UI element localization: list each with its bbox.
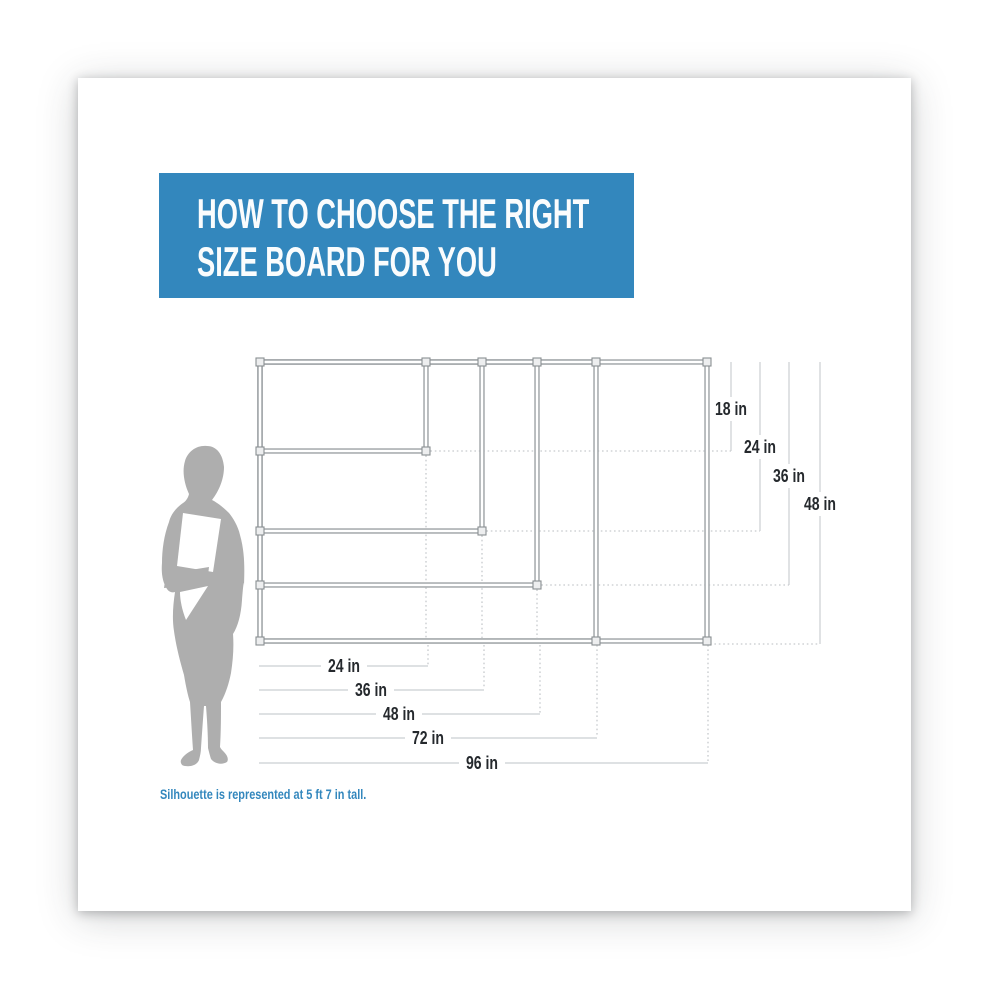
corner-block: [478, 358, 486, 366]
width-label-36in: 36 in: [355, 680, 387, 700]
silhouette-caption-text: Silhouette is represented at 5 ft 7 in t…: [160, 786, 366, 802]
corner-block: [256, 637, 264, 645]
silhouette-body: [162, 446, 245, 766]
corner-block: [256, 358, 264, 366]
corner-block: [533, 358, 541, 366]
board-frames: [260, 362, 707, 641]
width-label-48in: 48 in: [383, 704, 415, 724]
corner-block: [422, 447, 430, 455]
height-label-48in: 48 in: [804, 494, 836, 514]
width-label-24in: 24 in: [328, 656, 360, 676]
corner-block: [422, 358, 430, 366]
corner-block: [592, 637, 600, 645]
corner-block: [478, 527, 486, 535]
person-silhouette: [162, 446, 245, 766]
width-label-72in: 72 in: [412, 728, 444, 748]
corner-block: [592, 358, 600, 366]
corner-block: [533, 581, 541, 589]
corner-block: [256, 447, 264, 455]
corner-block: [256, 527, 264, 535]
board-size-diagram: 18 in 24 in 36 in 48 in 24 in 36 in 48 i…: [0, 0, 990, 990]
corner-block: [256, 581, 264, 589]
silhouette-caption: Silhouette is represented at 5 ft 7 in t…: [160, 786, 425, 802]
board-frame-36x24: [260, 362, 482, 531]
dotted-guides: [426, 451, 820, 762]
corner-block: [703, 637, 711, 645]
board-frame-48x36: [260, 362, 537, 585]
height-label-18in: 18 in: [715, 399, 747, 419]
height-label-24in: 24 in: [744, 437, 776, 457]
corner-block: [703, 358, 711, 366]
board-frame-24x18: [260, 362, 426, 451]
height-label-36in: 36 in: [773, 466, 805, 486]
height-labels: 18 in 24 in 36 in 48 in: [711, 397, 840, 516]
width-label-96in: 96 in: [466, 753, 498, 773]
